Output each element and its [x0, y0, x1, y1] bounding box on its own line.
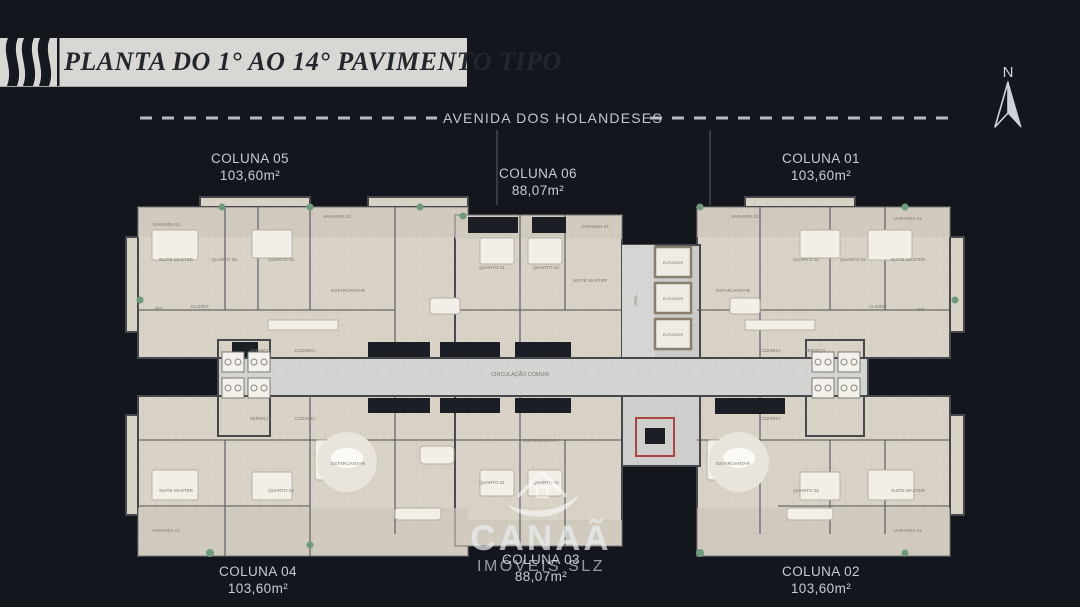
floor-plan-drawing: N — [0, 0, 1080, 607]
north-label: N — [1003, 64, 1014, 81]
unit-area: 103,60m² — [211, 167, 289, 184]
north-arrow-icon — [995, 82, 1008, 127]
room-label: VARANDA 01 — [894, 528, 922, 533]
unit-label-coluna-03: COLUNA 03 88,07m² — [502, 551, 580, 585]
room-label: ELEVADOR — [663, 333, 684, 337]
room-label: QUARTO 01 — [479, 480, 505, 485]
room-label: QUARTO 02 — [533, 480, 559, 485]
page-title: PLANTA DO 1° AO 14° PAVIMENTO TIPO — [64, 38, 459, 86]
room-label: SERVIÇO — [250, 348, 271, 353]
room-label: SUITE MASTER — [573, 278, 608, 283]
room-label: VARANDA 01 — [581, 224, 609, 229]
room-label: QUARTO 03 — [840, 257, 866, 262]
room-label: COZINHA — [295, 416, 317, 421]
room-label: CLOSET — [191, 304, 210, 309]
room-label: CLOSET — [869, 304, 888, 309]
room-label: COZINHA — [295, 348, 317, 353]
room-label: SUITE MASTER — [159, 257, 194, 262]
north-indicator: N — [995, 64, 1021, 127]
brand-stripes-icon — [0, 38, 62, 86]
room-label: ELEVADOR — [663, 261, 684, 265]
room-label: WC — [917, 307, 925, 312]
room-label: ESTAR/JANTAR — [331, 288, 365, 293]
room-label: ESTAR/JANTAR — [331, 461, 365, 466]
room-label: HALL — [633, 294, 638, 306]
room-label: QUARTO 02 — [793, 257, 819, 262]
room-label: VARANDA 01 — [894, 216, 922, 221]
room-label: WC — [155, 306, 163, 311]
unit-area: 88,07m² — [499, 182, 577, 199]
room-label: ELEVADOR — [663, 297, 684, 301]
unit-label-coluna-05: COLUNA 05 103,60m² — [211, 150, 289, 184]
street-name: AVENIDA DOS HOLANDESES — [443, 110, 643, 126]
room-label: VARANDA 02 — [323, 214, 351, 219]
unit-name: COLUNA 06 — [499, 165, 577, 182]
north-arrow-icon-fill — [1008, 82, 1021, 127]
unit-name: COLUNA 02 — [782, 563, 860, 580]
room-label: COZINHA — [760, 348, 782, 353]
unit-name: COLUNA 04 — [219, 563, 297, 580]
room-label: QUARTO 02 — [793, 488, 819, 493]
room-label: VARANDA 01 — [152, 528, 180, 533]
room-label: QUARTO 02 — [533, 265, 559, 270]
room-label: QUARTO 03 — [211, 257, 237, 262]
room-label: QUARTO 02 — [268, 257, 294, 262]
page-root: N — [0, 0, 1080, 607]
unit-area: 103,60m² — [782, 167, 860, 184]
room-label: COZINHA — [760, 416, 782, 421]
room-label: SUITE MASTER — [891, 257, 926, 262]
unit-area: 103,60m² — [782, 580, 860, 597]
room-label: ESTAR/JANTAR — [716, 288, 750, 293]
room-label: QUARTO 02 — [268, 488, 294, 493]
room-label: SUITE MASTER — [159, 488, 194, 493]
room-label: ESTAR/JANTAR — [523, 438, 557, 443]
room-label: VARANDA 02 — [731, 214, 759, 219]
unit-name: COLUNA 01 — [782, 150, 860, 167]
unit-label-coluna-04: COLUNA 04 103,60m² — [219, 563, 297, 597]
unit-label-coluna-01: COLUNA 01 103,60m² — [782, 150, 860, 184]
unit-area: 103,60m² — [219, 580, 297, 597]
room-label: ESTAR/JANTAR — [716, 461, 750, 466]
unit-label-coluna-06: COLUNA 06 88,07m² — [499, 165, 577, 199]
title-banner: PLANTA DO 1° AO 14° PAVIMENTO TIPO — [0, 38, 467, 87]
unit-area: 88,07m² — [502, 568, 580, 585]
room-label: VARANDA 01 — [152, 222, 180, 227]
room-label: QUARTO 01 — [479, 265, 505, 270]
room-label: SERVIÇO — [250, 416, 271, 421]
unit-name: COLUNA 05 — [211, 150, 289, 167]
room-label: SERVIÇO — [805, 348, 826, 353]
room-label: SUITE MASTER — [891, 488, 926, 493]
unit-label-coluna-02: COLUNA 02 103,60m² — [782, 563, 860, 597]
unit-name: COLUNA 03 — [502, 551, 580, 568]
room-label: CIRCULAÇÃO COMUM — [491, 371, 549, 378]
